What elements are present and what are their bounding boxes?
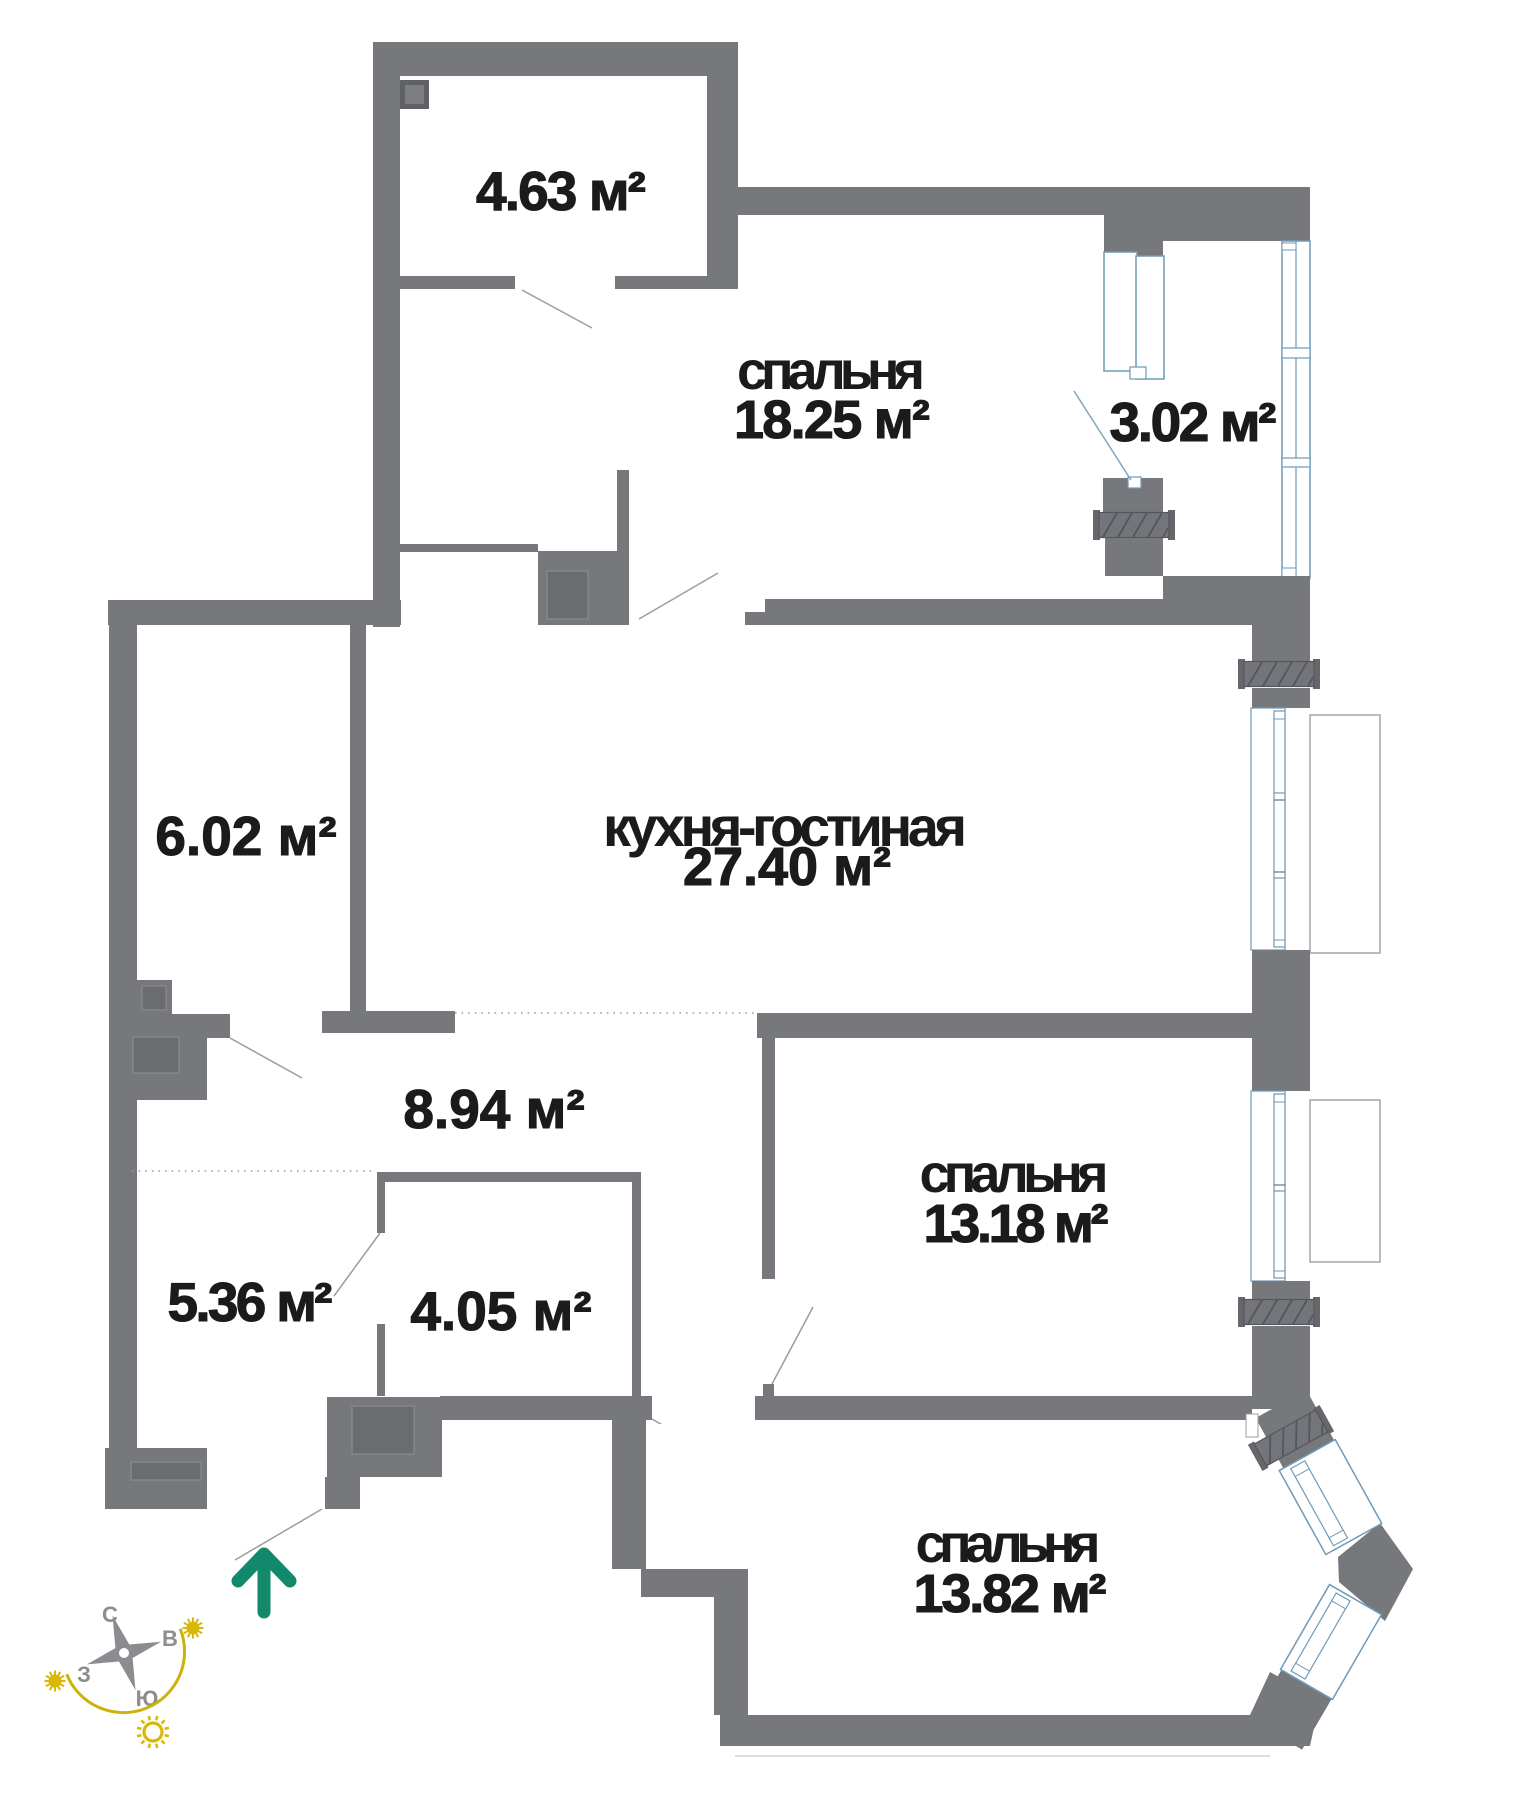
svg-text:З: З <box>77 1662 91 1687</box>
svg-text:3.02 м²: 3.02 м² <box>1110 391 1277 453</box>
svg-text:8.94 м²: 8.94 м² <box>403 1078 584 1140</box>
svg-text:В: В <box>162 1626 178 1651</box>
svg-text:13.82 м²: 13.82 м² <box>914 1564 1107 1624</box>
svg-text:С: С <box>102 1602 118 1627</box>
svg-text:5.36 м²: 5.36 м² <box>168 1271 333 1333</box>
svg-text:18.25 м²: 18.25 м² <box>734 390 930 450</box>
svg-text:4.05 м²: 4.05 м² <box>410 1280 591 1342</box>
svg-text:6.02 м²: 6.02 м² <box>155 805 336 867</box>
svg-text:13.18 м²: 13.18 м² <box>924 1194 1109 1254</box>
svg-text:27.40 м²: 27.40 м² <box>683 837 891 897</box>
svg-text:4.63 м²: 4.63 м² <box>476 160 646 222</box>
